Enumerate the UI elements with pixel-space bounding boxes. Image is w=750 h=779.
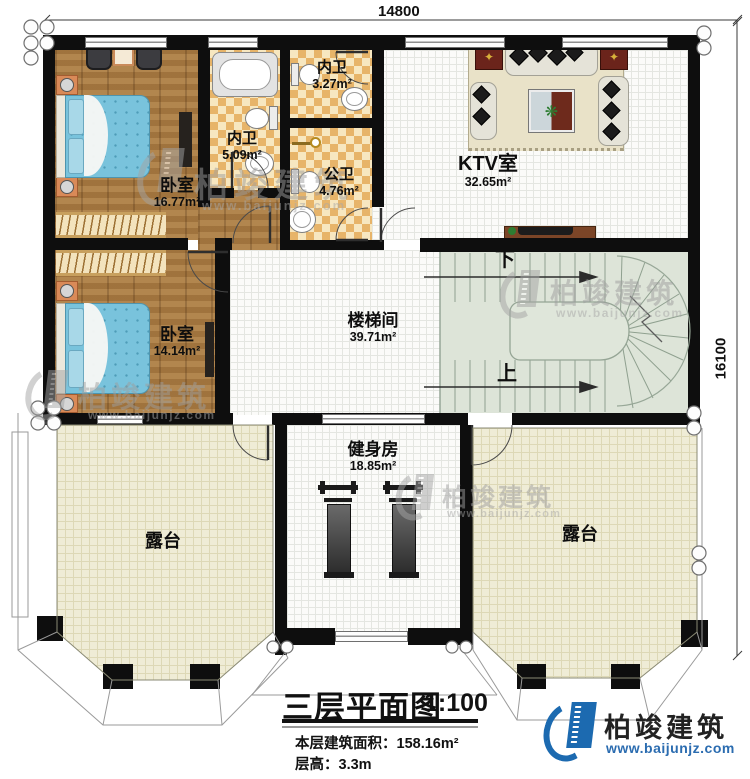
watermark-url: www.baijunjz.com xyxy=(202,198,346,213)
coffee-table: ❋ xyxy=(529,90,574,132)
stair-hall-floor xyxy=(230,250,440,415)
dimension-height: 16100 xyxy=(713,328,730,390)
room-area: 39.71m² xyxy=(348,330,399,344)
window xyxy=(322,414,425,424)
post xyxy=(681,620,708,647)
stairs-down-text: 下 xyxy=(495,249,515,271)
terrace-left-floor xyxy=(57,425,273,680)
plant-icon xyxy=(508,227,516,235)
wall-bottom-c xyxy=(512,413,700,425)
nightstand xyxy=(56,281,78,301)
weight-plate xyxy=(351,481,356,494)
nightstand xyxy=(56,75,78,95)
room-area: 18.85m² xyxy=(348,459,399,473)
room-label-bath-inner2: 内卫 3.27m² xyxy=(312,60,352,91)
room-area: 4.76m² xyxy=(319,184,359,198)
post xyxy=(37,616,63,641)
post xyxy=(517,664,546,689)
title-underline-thin xyxy=(282,726,478,728)
room-label-bath-public: 公卫 4.76m² xyxy=(319,167,359,198)
stairs-up-label: 上 xyxy=(497,363,517,385)
watermark: 柏竣建筑 www.baijunjz.com xyxy=(500,264,720,328)
watermark-url: www.baijunjz.com xyxy=(88,408,216,422)
window xyxy=(405,37,505,48)
room-label-bedroom1: 卧室 16.77m² xyxy=(154,176,201,209)
bench-base xyxy=(324,572,354,578)
bathtub xyxy=(212,52,278,97)
floor-height-note: 层高：3.3m xyxy=(295,753,372,774)
company-url: www.baijunjz.com xyxy=(606,740,735,756)
toilet-tank xyxy=(291,63,299,86)
window xyxy=(335,631,408,642)
room-name: 公卫 xyxy=(319,167,359,184)
window xyxy=(562,37,668,48)
watermark-logo-icon xyxy=(500,270,540,320)
wall xyxy=(215,238,232,250)
wall-bedrooms xyxy=(43,238,188,250)
pillow xyxy=(68,308,84,346)
post xyxy=(611,664,640,689)
company-logo: 柏竣建筑 www.baijunjz.com xyxy=(544,700,750,770)
bench-base xyxy=(389,572,419,578)
room-label-gym: 健身房 18.85m² xyxy=(348,440,399,473)
wall-gym-right xyxy=(460,425,473,640)
bench-pad xyxy=(327,504,351,574)
room-name: 楼梯间 xyxy=(348,311,399,330)
dimension-width: 14800 xyxy=(378,3,420,20)
room-name: 内卫 xyxy=(312,60,352,77)
room-name: KTV室 xyxy=(458,153,518,175)
room-name: 卧室 xyxy=(154,176,201,195)
room-label-ktv: KTV室 32.65m² xyxy=(458,153,518,189)
drawing-scale: 1:100 xyxy=(424,689,488,718)
wall-gym-bottom xyxy=(408,628,473,645)
nightstand xyxy=(56,177,78,197)
room-name: 露台 xyxy=(562,524,598,544)
wall-right xyxy=(688,35,700,425)
room-area: 16.77m² xyxy=(154,195,201,209)
room-label-bath-inner1: 内卫 5.09m² xyxy=(222,131,262,162)
watermark-logo-icon xyxy=(396,474,434,522)
room-area: 14.14m² xyxy=(154,344,201,358)
room-label-terrace-left: 露台 xyxy=(145,531,181,551)
title-underline xyxy=(282,719,478,723)
room-label-stairwell: 楼梯间 39.71m² xyxy=(348,311,399,344)
room-area: 3.27m² xyxy=(312,77,352,91)
room-label-terrace-right: 露台 xyxy=(562,524,598,544)
stairs-down-label: 下 xyxy=(495,249,515,271)
room-area: 32.65m² xyxy=(458,175,518,189)
floor-plan-canvas: ✦ ✦ ❋ xyxy=(0,0,750,779)
wardrobe xyxy=(56,250,166,276)
room-name: 健身房 xyxy=(348,440,399,459)
room-name: 内卫 xyxy=(222,131,262,148)
watermark-url: www.baijunjz.com xyxy=(447,508,561,520)
room-name: 露台 xyxy=(145,531,181,551)
wall-gym-left xyxy=(275,413,287,655)
tv-icon xyxy=(518,227,573,235)
toilet-tank xyxy=(269,106,278,130)
weight-plate xyxy=(385,481,390,494)
bench-rack xyxy=(324,498,352,502)
post xyxy=(190,664,220,689)
toilet-bowl xyxy=(245,108,269,129)
wall xyxy=(280,240,384,250)
stairs-up-text: 上 xyxy=(497,363,517,385)
room-name: 卧室 xyxy=(154,325,201,344)
room-label-bedroom2: 卧室 14.14m² xyxy=(154,325,201,358)
watermark: 柏竣建筑 www.baijunjz.com xyxy=(26,366,256,432)
floor-area-note: 本层建筑面积：158.16m² xyxy=(295,732,459,753)
terrace-right-floor xyxy=(473,428,697,678)
wall-ktv-bottom xyxy=(420,238,700,252)
post xyxy=(103,664,133,689)
window xyxy=(208,37,258,48)
window xyxy=(85,37,167,48)
double-bed xyxy=(56,95,148,176)
pillow xyxy=(68,99,84,135)
company-logo-icon xyxy=(544,702,596,764)
watermark: 柏竣建筑 www.baijunjz.com xyxy=(396,470,606,528)
watermark-url: www.baijunjz.com xyxy=(556,306,684,320)
room-area: 5.09m² xyxy=(222,148,262,162)
wall-gym-bottom xyxy=(275,628,335,645)
wall xyxy=(280,118,372,128)
weight-plate xyxy=(320,481,325,494)
pillow xyxy=(68,138,84,174)
watermark-logo-icon xyxy=(26,370,68,422)
